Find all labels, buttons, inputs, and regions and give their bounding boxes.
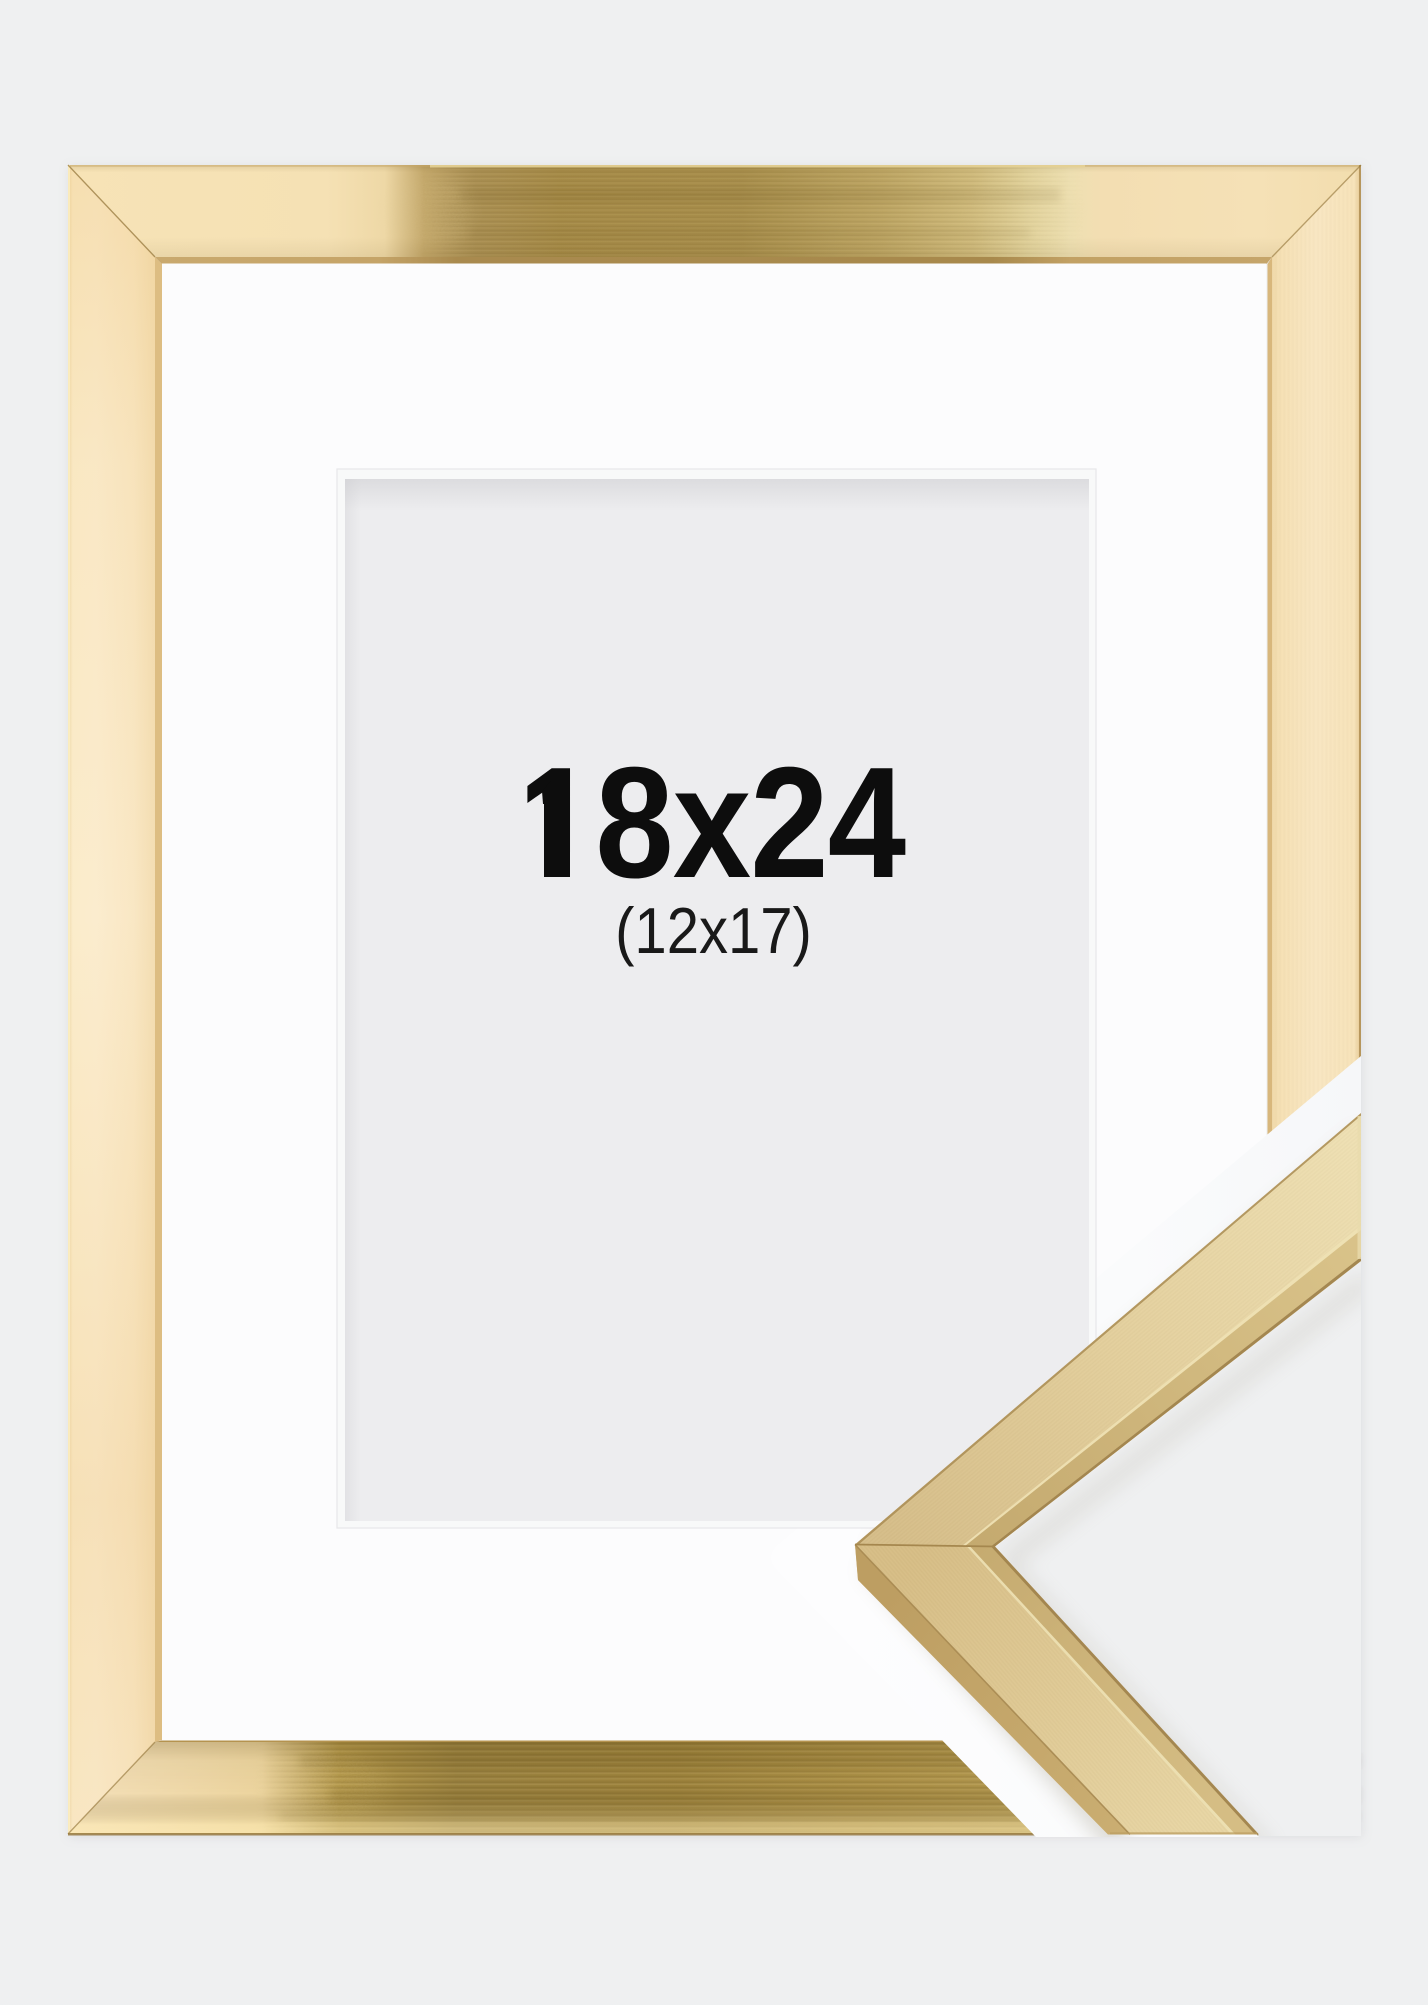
svg-text:(12x17): (12x17) (615, 895, 812, 968)
svg-text:18x24: 18x24 (518, 733, 906, 910)
